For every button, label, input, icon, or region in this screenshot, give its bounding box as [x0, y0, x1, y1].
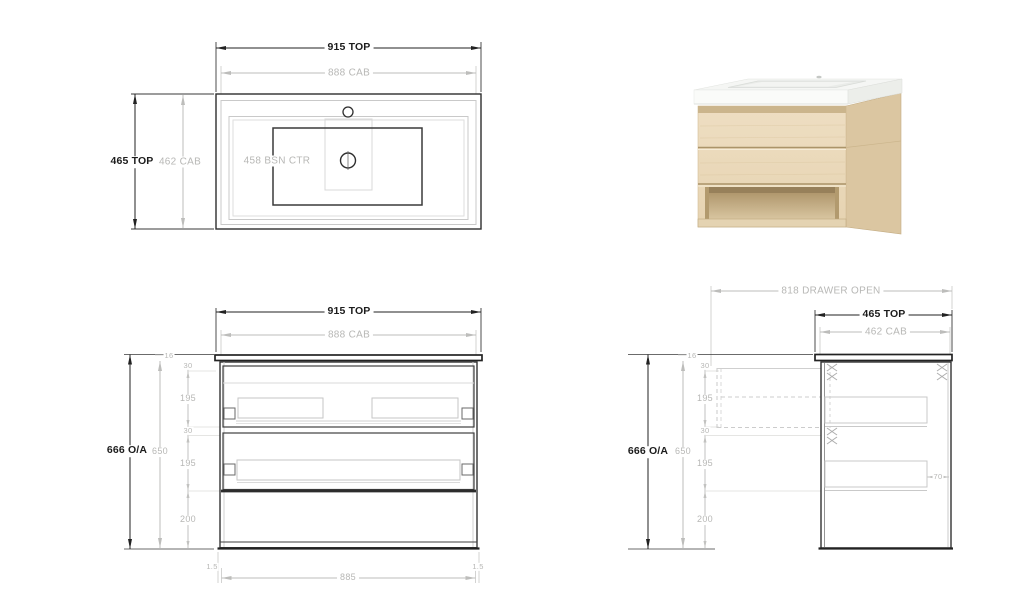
side-open-drawer — [717, 366, 830, 428]
dim-side-drawer-one: 195 — [694, 394, 716, 404]
dim-plan-top-width: 915 TOP — [325, 42, 374, 54]
front-drawer-two — [223, 433, 474, 490]
front-carcass — [220, 362, 477, 548]
dim-side-drawer-two: 195 — [694, 459, 716, 469]
runner-clip — [462, 464, 473, 475]
front-cabinet-linework — [215, 355, 482, 549]
open-shelf — [705, 187, 839, 219]
plan-view-drawing — [95, 35, 505, 245]
under-top-strip — [698, 106, 846, 113]
side-cabinet-linework — [815, 355, 953, 549]
dim-side-gap-mid: 30 — [700, 427, 711, 435]
cabinet-side-panel — [846, 93, 901, 234]
dim-side-top-depth: 465 TOP — [860, 309, 909, 321]
dim-plan-top-depth: 465 TOP — [108, 156, 157, 168]
dim-side-drawer-open: 818 DRAWER OPEN — [778, 286, 883, 297]
product-render — [680, 55, 915, 245]
runner-clip — [462, 408, 473, 419]
dim-side-gap-top: 30 — [700, 362, 711, 370]
fixing-bracket-symbols — [827, 364, 947, 444]
dim-front-shelf: 200 — [177, 515, 199, 525]
dim-front-gap-top: 30 — [183, 362, 194, 370]
side-drawer-box-one — [825, 397, 927, 423]
faucet-hole-render — [816, 76, 821, 79]
dim-front-top-thickness: 16 — [164, 352, 175, 360]
dim-front-drawer-one: 195 — [177, 394, 199, 404]
side-chain-ext — [705, 371, 821, 491]
side-view-drawing — [615, 275, 1015, 595]
dim-front-top-width: 915 TOP — [325, 306, 374, 318]
side-drawer-box-two — [825, 461, 927, 487]
dim-plan-basin-centre: 458 BSN CTR — [241, 156, 314, 167]
dim-front-clear-left: 1.5 — [205, 563, 218, 571]
front-benchtop — [215, 355, 482, 361]
shelf-floor-edge — [698, 219, 846, 227]
front-bottom-panel — [220, 542, 477, 548]
benchtop-render — [694, 76, 902, 104]
dim-front-gap-mid: 30 — [183, 427, 194, 435]
dim-side-shelf: 200 — [694, 515, 716, 525]
drawing-sheet: 915 TOP 888 CAB 465 TOP 462 CAB 458 BSN … — [0, 0, 1018, 615]
front-drawer-one — [223, 366, 474, 427]
dim-side-rear-clearance: 70 — [933, 473, 944, 481]
dim-side-cab-depth: 462 CAB — [862, 327, 910, 338]
dim-plan-cab-depth: 462 CAB — [156, 157, 204, 168]
cabinet-front — [698, 106, 846, 227]
dim-side-cab-height: 650 — [672, 447, 694, 457]
dim-plan-cab-width: 888 CAB — [325, 68, 373, 79]
faucet-hole — [343, 107, 353, 117]
side-benchtop — [815, 355, 952, 361]
runner-clip — [224, 464, 235, 475]
dim-front-drawer-two: 195 — [177, 459, 199, 469]
dim-front-cab-width: 888 CAB — [325, 330, 373, 341]
runner-clip — [224, 408, 235, 419]
dim-front-overall: 666 O/A — [104, 445, 150, 457]
dim-front-internal: 885 — [337, 573, 359, 583]
dim-front-clear-right: 1.5 — [471, 563, 484, 571]
side-carcass — [821, 362, 951, 548]
dim-side-overall: 666 O/A — [625, 446, 671, 458]
dim-front-cab-height: 650 — [149, 447, 171, 457]
side-dimension-lines — [628, 286, 952, 549]
dim-side-top-thickness: 16 — [687, 352, 698, 360]
